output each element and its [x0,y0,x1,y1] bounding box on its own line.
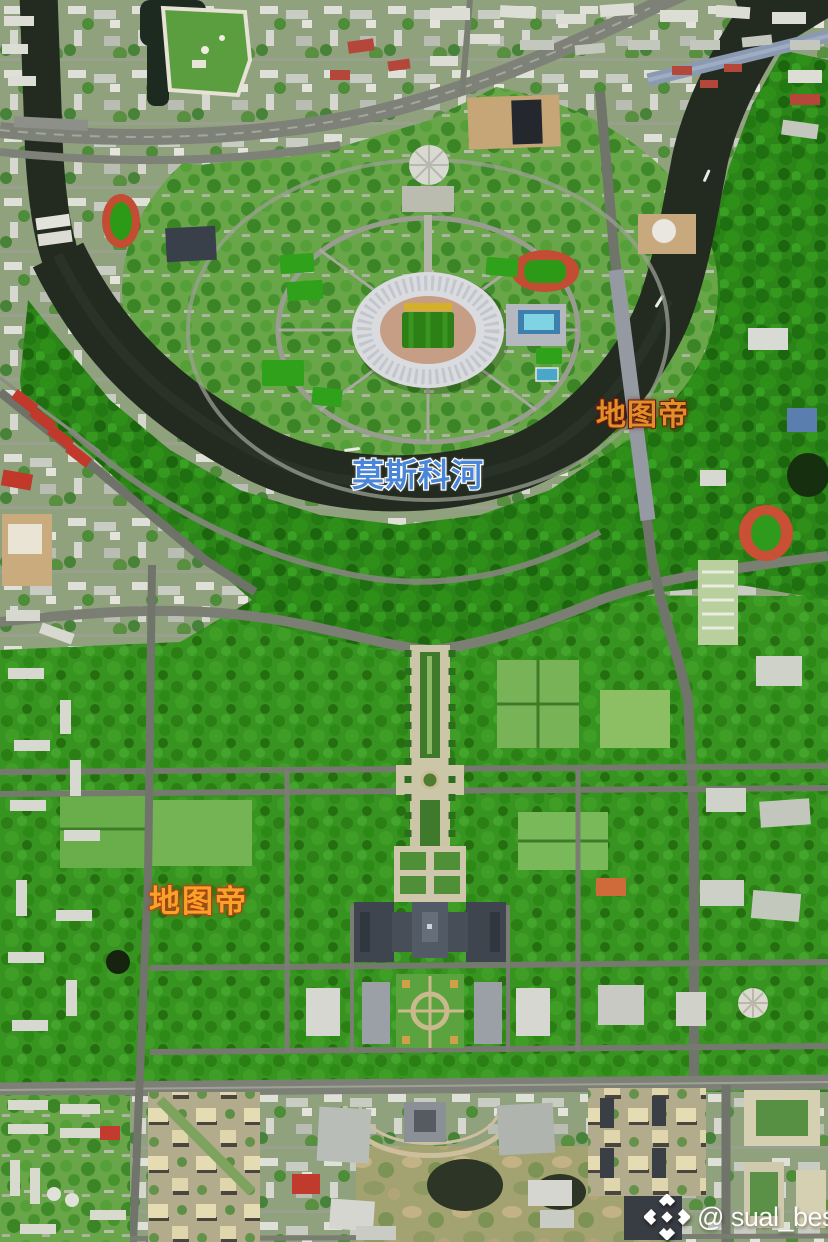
faculty-building [362,982,390,1044]
faculty-building [474,982,502,1044]
dark-pond [427,1159,503,1211]
outdoor-pool [536,368,558,381]
plaza [402,186,454,212]
novodevichy-area [140,0,250,106]
pond [787,453,828,497]
clay-courts [596,878,626,896]
satellite-screenshot: 莫斯科河 地图帝 地图帝 @ sual_besta [0,0,828,1242]
dark-building [624,1196,682,1240]
satellite-map-canvas [0,0,828,1242]
msu-main-building [354,902,506,962]
cream-housing-sw [148,1092,260,1242]
blue-roof-building [787,408,817,432]
dome [652,219,676,243]
round-pond [106,950,130,974]
small-arena [165,226,217,263]
red-building [292,1174,320,1194]
